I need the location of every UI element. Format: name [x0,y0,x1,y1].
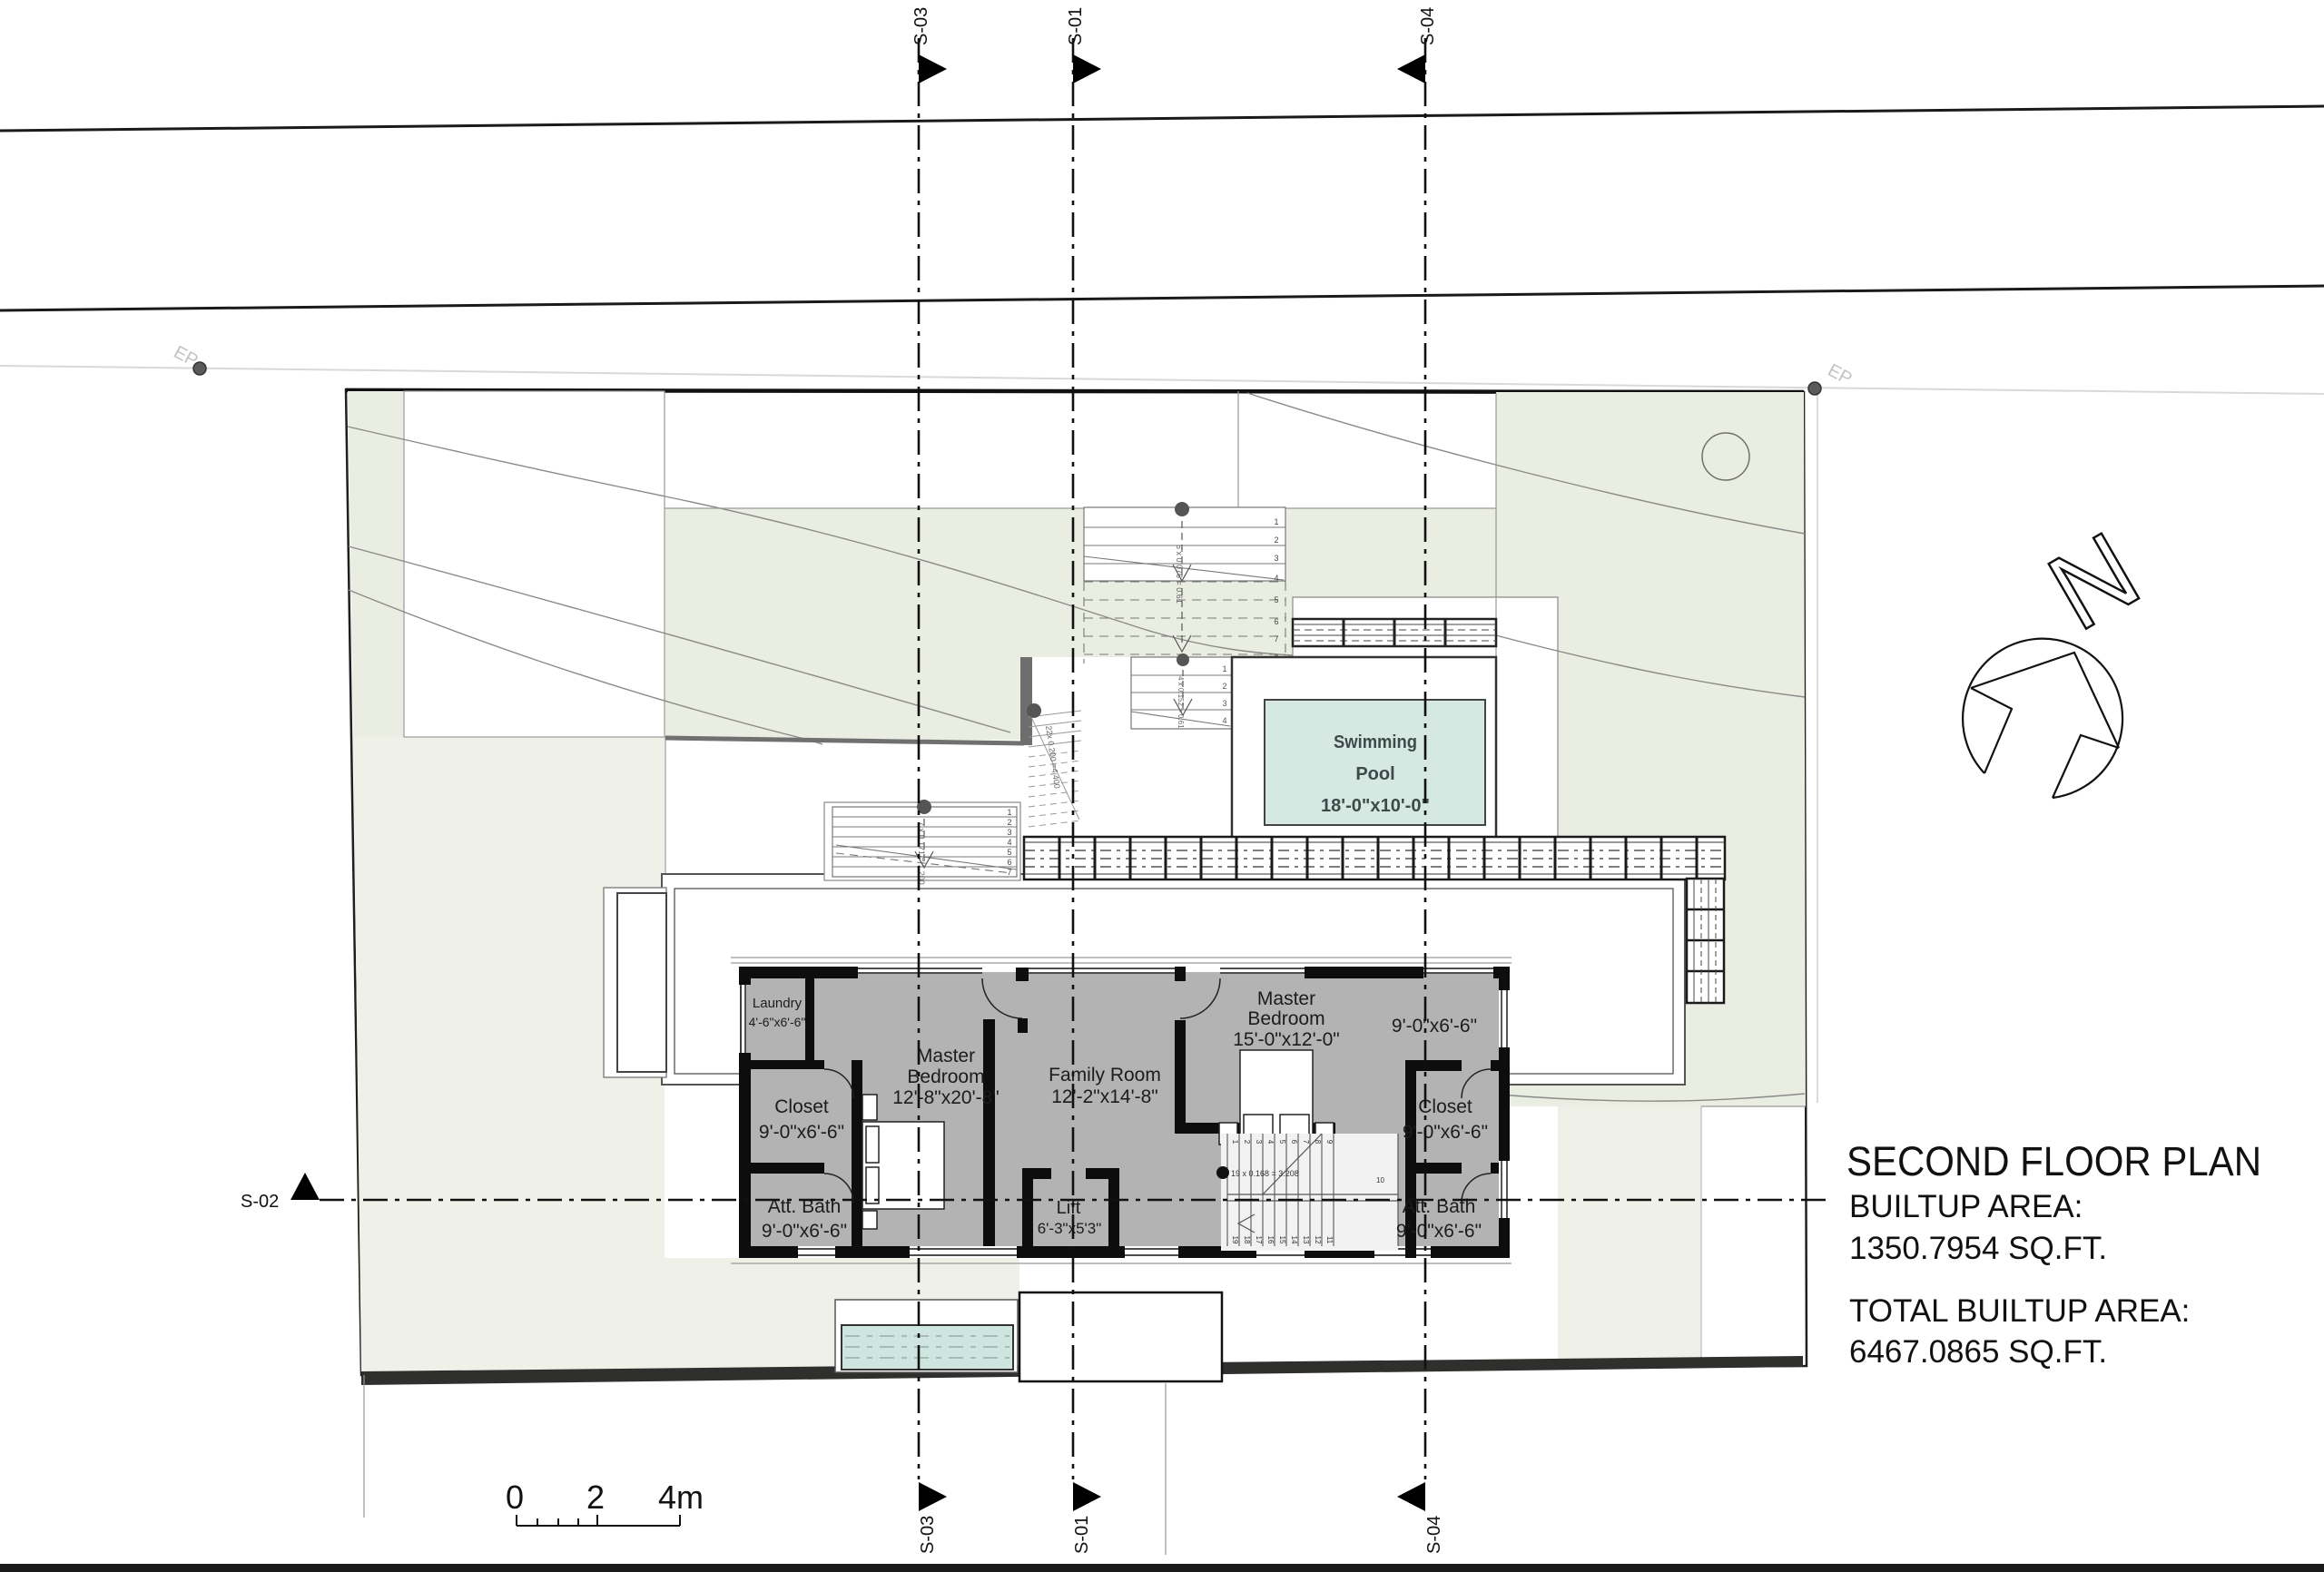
svg-text:9'-0"x6'-6": 9'-0"x6'-6" [1396,1221,1482,1242]
svg-text:6'-3"x5'3": 6'-3"x5'3" [1038,1220,1102,1237]
svg-text:18'-0"x10'-0": 18'-0"x10'-0" [1321,796,1430,816]
svg-text:4: 4 [1222,716,1226,725]
svg-text:S-03: S-03 [911,7,931,45]
svg-text:5: 5 [1278,1140,1286,1145]
svg-text:5: 5 [1007,848,1011,857]
svg-text:4'-6"x6'-6": 4'-6"x6'-6" [749,1015,806,1029]
svg-text:S-04: S-04 [1418,7,1438,45]
svg-text:1: 1 [1007,808,1011,817]
svg-text:Master: Master [1257,988,1315,1009]
svg-text:2: 2 [1274,535,1278,545]
svg-text:6: 6 [1274,617,1278,626]
svg-text:9'-0"x6'-6": 9'-0"x6'-6" [762,1221,847,1242]
svg-text:0: 0 [506,1479,524,1516]
svg-text:9'-0"x6'-6": 9'-0"x6'-6" [1392,1016,1477,1037]
svg-text:S-01: S-01 [1072,1516,1092,1554]
svg-text:9'-0"x6'-6": 9'-0"x6'-6" [759,1122,844,1143]
svg-text:4m: 4m [658,1479,704,1516]
svg-text:3: 3 [1222,699,1226,708]
svg-text:14: 14 [1290,1236,1298,1244]
svg-text:2: 2 [1222,682,1226,691]
svg-text:Bedroom: Bedroom [1247,1008,1324,1029]
svg-text:2: 2 [586,1479,605,1516]
svg-text:S-01: S-01 [1066,7,1086,45]
svg-text:1: 1 [1274,517,1278,526]
svg-text:13: 13 [1302,1236,1310,1244]
svg-text:7: 7 [1302,1140,1310,1145]
svg-text:12'-2"x14'-8": 12'-2"x14'-8" [1051,1086,1158,1107]
svg-text:3: 3 [1007,828,1011,837]
svg-text:3: 3 [1255,1140,1263,1145]
svg-text:4: 4 [1007,838,1011,847]
svg-text:6467.0865 SQ.FT.: 6467.0865 SQ.FT. [1849,1334,2107,1370]
svg-text:4 x 0.152 = 0.61: 4 x 0.152 = 0.61 [1177,676,1185,729]
svg-text:Swimming: Swimming [1334,732,1417,752]
svg-text:5: 5 [1274,595,1278,604]
svg-text:7: 7 [1007,868,1011,877]
svg-text:4: 4 [1266,1140,1275,1145]
svg-text:Family Room: Family Room [1049,1065,1161,1086]
svg-text:Lift: Lift [1057,1198,1081,1218]
svg-text:10: 10 [1376,1176,1384,1184]
svg-text:Closet: Closet [774,1096,829,1117]
svg-text:6: 6 [1290,1140,1298,1145]
svg-text:7: 7 [1274,634,1278,644]
svg-text:17: 17 [1255,1236,1263,1244]
svg-text:S-02: S-02 [241,1192,279,1212]
svg-text:15: 15 [1278,1236,1286,1244]
svg-text:19 x 0.168 = 3.208: 19 x 0.168 = 3.208 [1231,1169,1299,1178]
svg-text:1: 1 [1222,664,1226,673]
svg-text:1: 1 [1231,1140,1239,1145]
svg-text:SECOND FLOOR PLAN: SECOND FLOOR PLAN [1846,1138,2261,1184]
svg-text:S-04: S-04 [1424,1516,1444,1554]
svg-text:S-03: S-03 [918,1516,938,1554]
svg-text:9: 9 [1325,1140,1334,1145]
svg-text:Laundry: Laundry [753,996,803,1011]
svg-text:12: 12 [1314,1236,1322,1244]
svg-text:15'-0"x12'-0": 15'-0"x12'-0" [1233,1029,1340,1050]
svg-text:18: 18 [1243,1236,1251,1244]
svg-text:11: 11 [1325,1236,1334,1244]
svg-text:2: 2 [1243,1140,1251,1145]
svg-text:Master: Master [917,1046,975,1066]
svg-text:1350.7954 SQ.FT.: 1350.7954 SQ.FT. [1849,1231,2107,1266]
svg-text:2: 2 [1007,818,1011,827]
svg-text:12'-8"x20'-8": 12'-8"x20'-8" [892,1087,1000,1108]
svg-text:8: 8 [1314,1140,1322,1145]
svg-text:TOTAL BUILTUP AREA:: TOTAL BUILTUP AREA: [1849,1293,2190,1329]
svg-text:BUILTUP AREA:: BUILTUP AREA: [1849,1189,2083,1224]
svg-text:6: 6 [1007,858,1011,867]
svg-text:4: 4 [1274,574,1278,583]
svg-text:6 x 0.076 = 0.61: 6 x 0.076 = 0.61 [1175,545,1184,604]
svg-text:9'-0"x6'-6": 9'-0"x6'-6" [1403,1122,1488,1143]
svg-text:19: 19 [1231,1236,1239,1244]
svg-text:16: 16 [1266,1236,1275,1244]
svg-text:3: 3 [1274,554,1278,563]
svg-text:Pool: Pool [1355,764,1394,784]
